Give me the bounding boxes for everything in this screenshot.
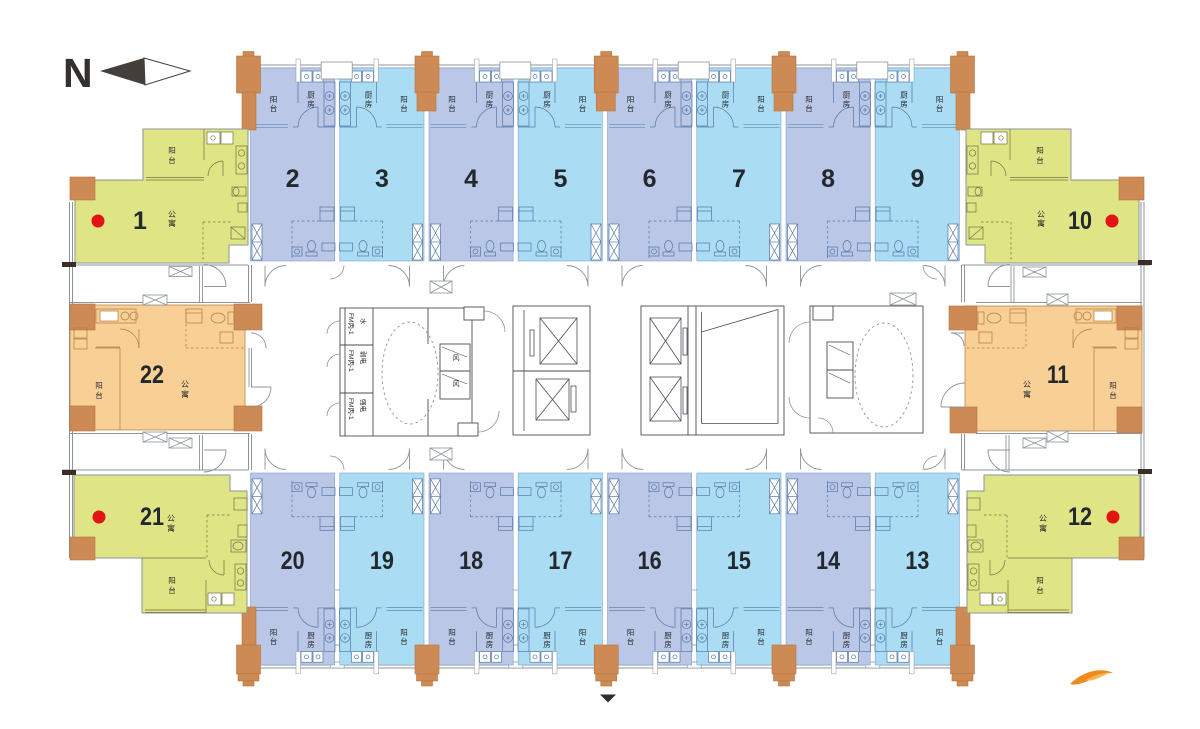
svg-text:20: 20	[281, 547, 305, 575]
svg-text:阳: 阳	[627, 95, 635, 104]
svg-text:18: 18	[459, 547, 483, 575]
svg-text:FM丙-1: FM丙-1	[347, 398, 355, 420]
svg-text:9: 9	[910, 165, 924, 193]
svg-text:房: 房	[900, 639, 908, 649]
svg-text:厨: 厨	[664, 631, 672, 640]
svg-text:房: 房	[722, 99, 730, 109]
svg-text:台: 台	[95, 390, 103, 400]
svg-text:厨: 厨	[486, 631, 494, 640]
svg-text:台: 台	[400, 636, 408, 646]
svg-text:厨: 厨	[664, 91, 672, 100]
svg-text:台: 台	[168, 585, 176, 595]
svg-text:厨: 厨	[365, 631, 373, 640]
svg-text:台: 台	[579, 103, 587, 113]
svg-text:厨: 厨	[900, 631, 908, 640]
svg-text:台: 台	[805, 103, 813, 113]
svg-text:房: 房	[365, 639, 373, 649]
svg-text:房: 房	[486, 99, 494, 109]
svg-text:台: 台	[936, 636, 944, 646]
svg-text:房: 房	[843, 99, 851, 109]
svg-text:台: 台	[448, 103, 456, 113]
svg-text:厨: 厨	[307, 91, 315, 100]
svg-text:2: 2	[286, 165, 300, 193]
svg-text:11: 11	[1047, 361, 1069, 389]
svg-text:阳: 阳	[936, 95, 944, 104]
svg-text:厨: 厨	[722, 631, 730, 640]
svg-text:5: 5	[553, 165, 567, 193]
svg-text:10: 10	[1068, 207, 1092, 235]
svg-text:台: 台	[270, 636, 278, 646]
svg-text:台: 台	[168, 155, 176, 165]
svg-text:房: 房	[307, 639, 315, 649]
svg-text:阳: 阳	[579, 628, 587, 637]
svg-text:房: 房	[664, 639, 672, 649]
svg-text:寓: 寓	[1023, 389, 1031, 399]
svg-text:阳: 阳	[448, 95, 456, 104]
svg-text:厨: 厨	[843, 631, 851, 640]
svg-text:19: 19	[370, 547, 394, 575]
svg-text:厨: 厨	[307, 631, 315, 640]
svg-text:台: 台	[757, 103, 765, 113]
svg-text:12: 12	[1068, 503, 1092, 531]
svg-text:寓: 寓	[1039, 523, 1047, 533]
svg-text:房: 房	[543, 639, 551, 649]
svg-text:22: 22	[140, 361, 164, 389]
svg-text:寓: 寓	[181, 389, 189, 399]
svg-text:台: 台	[1109, 390, 1117, 400]
svg-text:阳: 阳	[936, 628, 944, 637]
svg-text:13: 13	[905, 547, 929, 575]
svg-text:台: 台	[805, 636, 813, 646]
svg-text:厨: 厨	[486, 91, 494, 100]
svg-text:厨: 厨	[900, 91, 908, 100]
svg-text:FM丙-1: FM丙-1	[347, 350, 355, 372]
svg-text:台: 台	[579, 636, 587, 646]
svg-text:公: 公	[1037, 210, 1045, 219]
svg-text:6: 6	[643, 165, 657, 193]
svg-text:房: 房	[664, 99, 672, 109]
svg-text:3: 3	[375, 165, 389, 193]
svg-text:阳: 阳	[95, 381, 103, 390]
svg-text:FM丙-1: FM丙-1	[347, 313, 355, 335]
svg-text:公: 公	[167, 514, 175, 523]
svg-text:公: 公	[168, 210, 176, 219]
svg-text:16: 16	[638, 547, 662, 575]
svg-text:寓: 寓	[167, 523, 175, 533]
svg-text:1: 1	[133, 207, 147, 235]
svg-text:厨: 厨	[543, 631, 551, 640]
svg-text:风: 风	[453, 354, 460, 362]
svg-text:阳: 阳	[400, 628, 408, 637]
svg-text:房: 房	[900, 99, 908, 109]
svg-text:房: 房	[722, 639, 730, 649]
svg-text:台: 台	[1036, 155, 1044, 165]
svg-text:台: 台	[1036, 585, 1044, 595]
svg-text:阳: 阳	[400, 95, 408, 104]
svg-text:阳: 阳	[579, 95, 587, 104]
svg-text:房: 房	[543, 99, 551, 109]
svg-text:厨: 厨	[722, 91, 730, 100]
svg-text:风: 风	[453, 380, 460, 388]
svg-text:14: 14	[816, 547, 840, 575]
svg-text:阳: 阳	[1109, 381, 1117, 390]
svg-text:阳: 阳	[168, 576, 176, 585]
svg-text:寓: 寓	[168, 218, 176, 228]
svg-text:厨: 厨	[365, 91, 373, 100]
svg-text:阳: 阳	[270, 95, 278, 104]
svg-text:公: 公	[1023, 380, 1031, 389]
svg-text:台: 台	[400, 103, 408, 113]
svg-text:厨: 厨	[843, 91, 851, 100]
svg-text:8: 8	[821, 165, 835, 193]
svg-text:水: 水	[359, 318, 368, 325]
svg-text:房: 房	[365, 99, 373, 109]
svg-text:台: 台	[270, 103, 278, 113]
svg-text:公: 公	[1039, 514, 1047, 523]
svg-text:阳: 阳	[805, 628, 813, 637]
svg-text:阳: 阳	[805, 95, 813, 104]
svg-text:21: 21	[140, 503, 164, 531]
svg-text:7: 7	[732, 165, 746, 193]
svg-text:房: 房	[486, 639, 494, 649]
svg-text:N: N	[63, 50, 93, 96]
svg-text:台: 台	[757, 636, 765, 646]
svg-text:阳: 阳	[627, 628, 635, 637]
svg-text:阳: 阳	[757, 628, 765, 637]
svg-text:4: 4	[464, 165, 478, 193]
svg-text:17: 17	[548, 547, 572, 575]
svg-text:公: 公	[181, 380, 189, 389]
svg-text:阳: 阳	[448, 628, 456, 637]
svg-text:房: 房	[843, 639, 851, 649]
svg-text:台: 台	[448, 636, 456, 646]
svg-text:阳: 阳	[168, 146, 176, 155]
svg-text:强电: 强电	[359, 399, 368, 413]
svg-text:台: 台	[627, 103, 635, 113]
svg-text:厨: 厨	[543, 91, 551, 100]
svg-text:寓: 寓	[1037, 218, 1045, 228]
svg-text:阳: 阳	[757, 95, 765, 104]
svg-text:台: 台	[936, 103, 944, 113]
svg-text:阳: 阳	[270, 628, 278, 637]
svg-text:房: 房	[307, 99, 315, 109]
svg-text:阳: 阳	[1036, 576, 1044, 585]
svg-text:15: 15	[727, 547, 751, 575]
svg-text:台: 台	[627, 636, 635, 646]
svg-text:弱电: 弱电	[359, 351, 368, 365]
svg-text:阳: 阳	[1036, 146, 1044, 155]
